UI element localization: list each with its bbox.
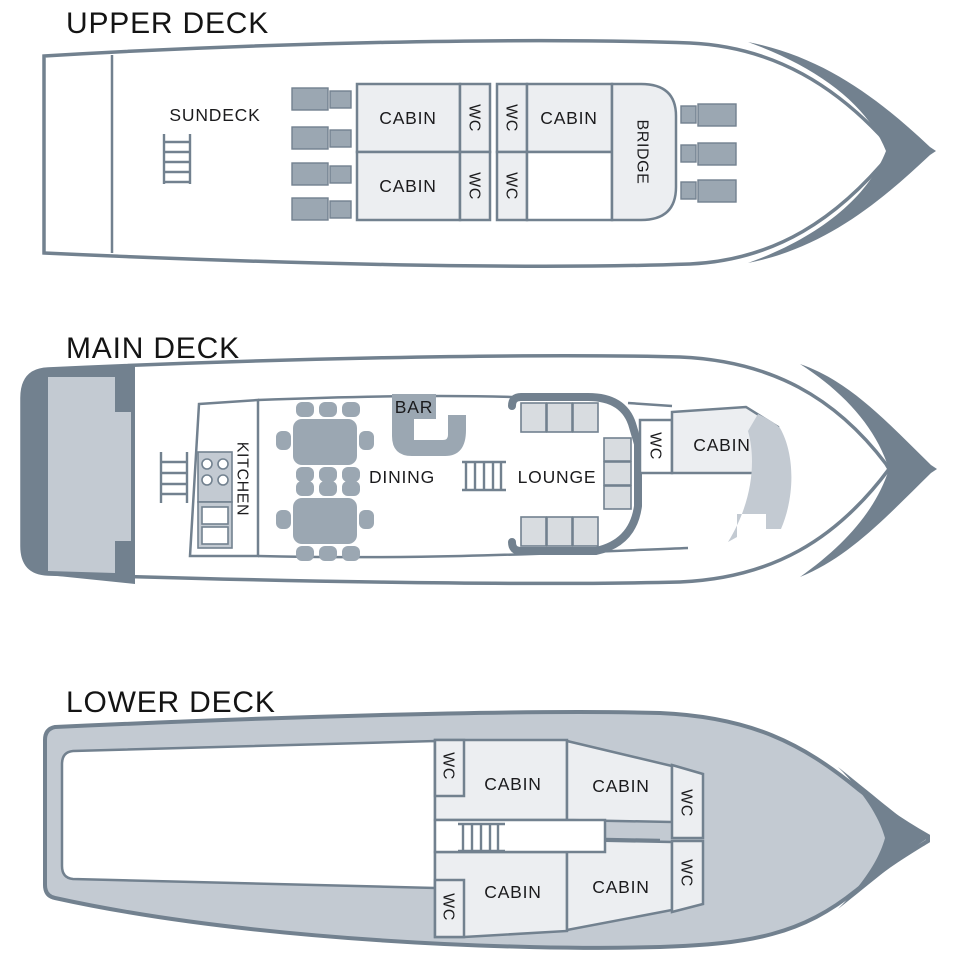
sun-lounger-row-fwd (681, 104, 736, 202)
dining-chair-icon (359, 431, 374, 450)
deck-plan-svg: UPPER DECK SUNDECK CABIN CABIN CABIN WC … (0, 0, 977, 959)
sun-lounger-icon (681, 180, 736, 202)
bar-label: BAR (395, 397, 433, 417)
dining-chair-icon (296, 402, 314, 417)
wc-label: WC (502, 104, 519, 132)
main-deck: MAIN DECK KITCHEN (22, 332, 937, 584)
sun-lounger-icon (292, 127, 351, 149)
deck-plan-page: UPPER DECK SUNDECK CABIN CABIN CABIN WC … (0, 0, 977, 959)
dining-chair-icon (342, 402, 360, 417)
cabin-label: CABIN (540, 108, 597, 128)
corridor-wall-stub (605, 839, 660, 840)
bridge-label: BRIDGE (633, 120, 650, 185)
cabin-label: CABIN (379, 108, 436, 128)
sun-lounger-icon (681, 104, 736, 126)
sun-lounger-icon (681, 143, 736, 165)
dining-table-icon (293, 498, 357, 544)
dining-chair-icon (342, 481, 360, 496)
upper-deck: UPPER DECK SUNDECK CABIN CABIN CABIN WC … (44, 7, 936, 266)
dining-chair-icon (319, 546, 337, 561)
main-deck-title: MAIN DECK (66, 332, 240, 365)
wc-label: WC (439, 752, 456, 780)
lounge-label: LOUNGE (518, 467, 597, 487)
wc-label: WC (502, 172, 519, 200)
wc-label: WC (677, 789, 694, 817)
cabin-label: CABIN (592, 776, 649, 796)
lower-deck: LOWER DECK CABIN CABIN CABIN CABIN WC WC… (45, 686, 928, 948)
dining-chair-icon (276, 431, 291, 450)
dining-chair-icon (319, 481, 337, 496)
sink-icon (202, 527, 228, 544)
upper-deck-title: UPPER DECK (66, 7, 269, 40)
dining-chair-icon (296, 467, 314, 482)
dining-chair-icon (296, 481, 314, 496)
sundeck-label: SUNDECK (169, 105, 260, 125)
lower-deck-title: LOWER DECK (66, 686, 276, 719)
dining-table-icon (293, 419, 357, 465)
wc-label: WC (439, 893, 456, 921)
dining-label: DINING (369, 467, 435, 487)
stove-burner-icon (202, 475, 212, 485)
dining-chair-icon (276, 510, 291, 529)
upper-open-room (527, 152, 612, 220)
sun-lounger-icon (292, 163, 351, 185)
cabin-label: CABIN (484, 882, 541, 902)
sun-lounger-icon (292, 198, 351, 220)
cabin-label: CABIN (693, 435, 750, 455)
cabin-label: CABIN (379, 176, 436, 196)
stove-burner-icon (202, 459, 212, 469)
wc-label: WC (465, 172, 482, 200)
sink-icon (202, 507, 228, 524)
stove-burner-icon (218, 459, 228, 469)
stove-burner-icon (218, 475, 228, 485)
wc-label: WC (646, 432, 663, 460)
cabin-label: CABIN (484, 774, 541, 794)
engine-room (62, 741, 435, 888)
dining-chair-icon (342, 467, 360, 482)
dining-chair-icon (319, 402, 337, 417)
kitchen-label: KITCHEN (233, 442, 250, 516)
dining-chair-icon (342, 546, 360, 561)
dining-chair-icon (296, 546, 314, 561)
dining-chair-icon (359, 510, 374, 529)
dining-chair-icon (319, 467, 337, 482)
wc-label: WC (465, 104, 482, 132)
sun-lounger-icon (292, 88, 351, 110)
cabin-label: CABIN (592, 877, 649, 897)
wc-label: WC (677, 859, 694, 887)
